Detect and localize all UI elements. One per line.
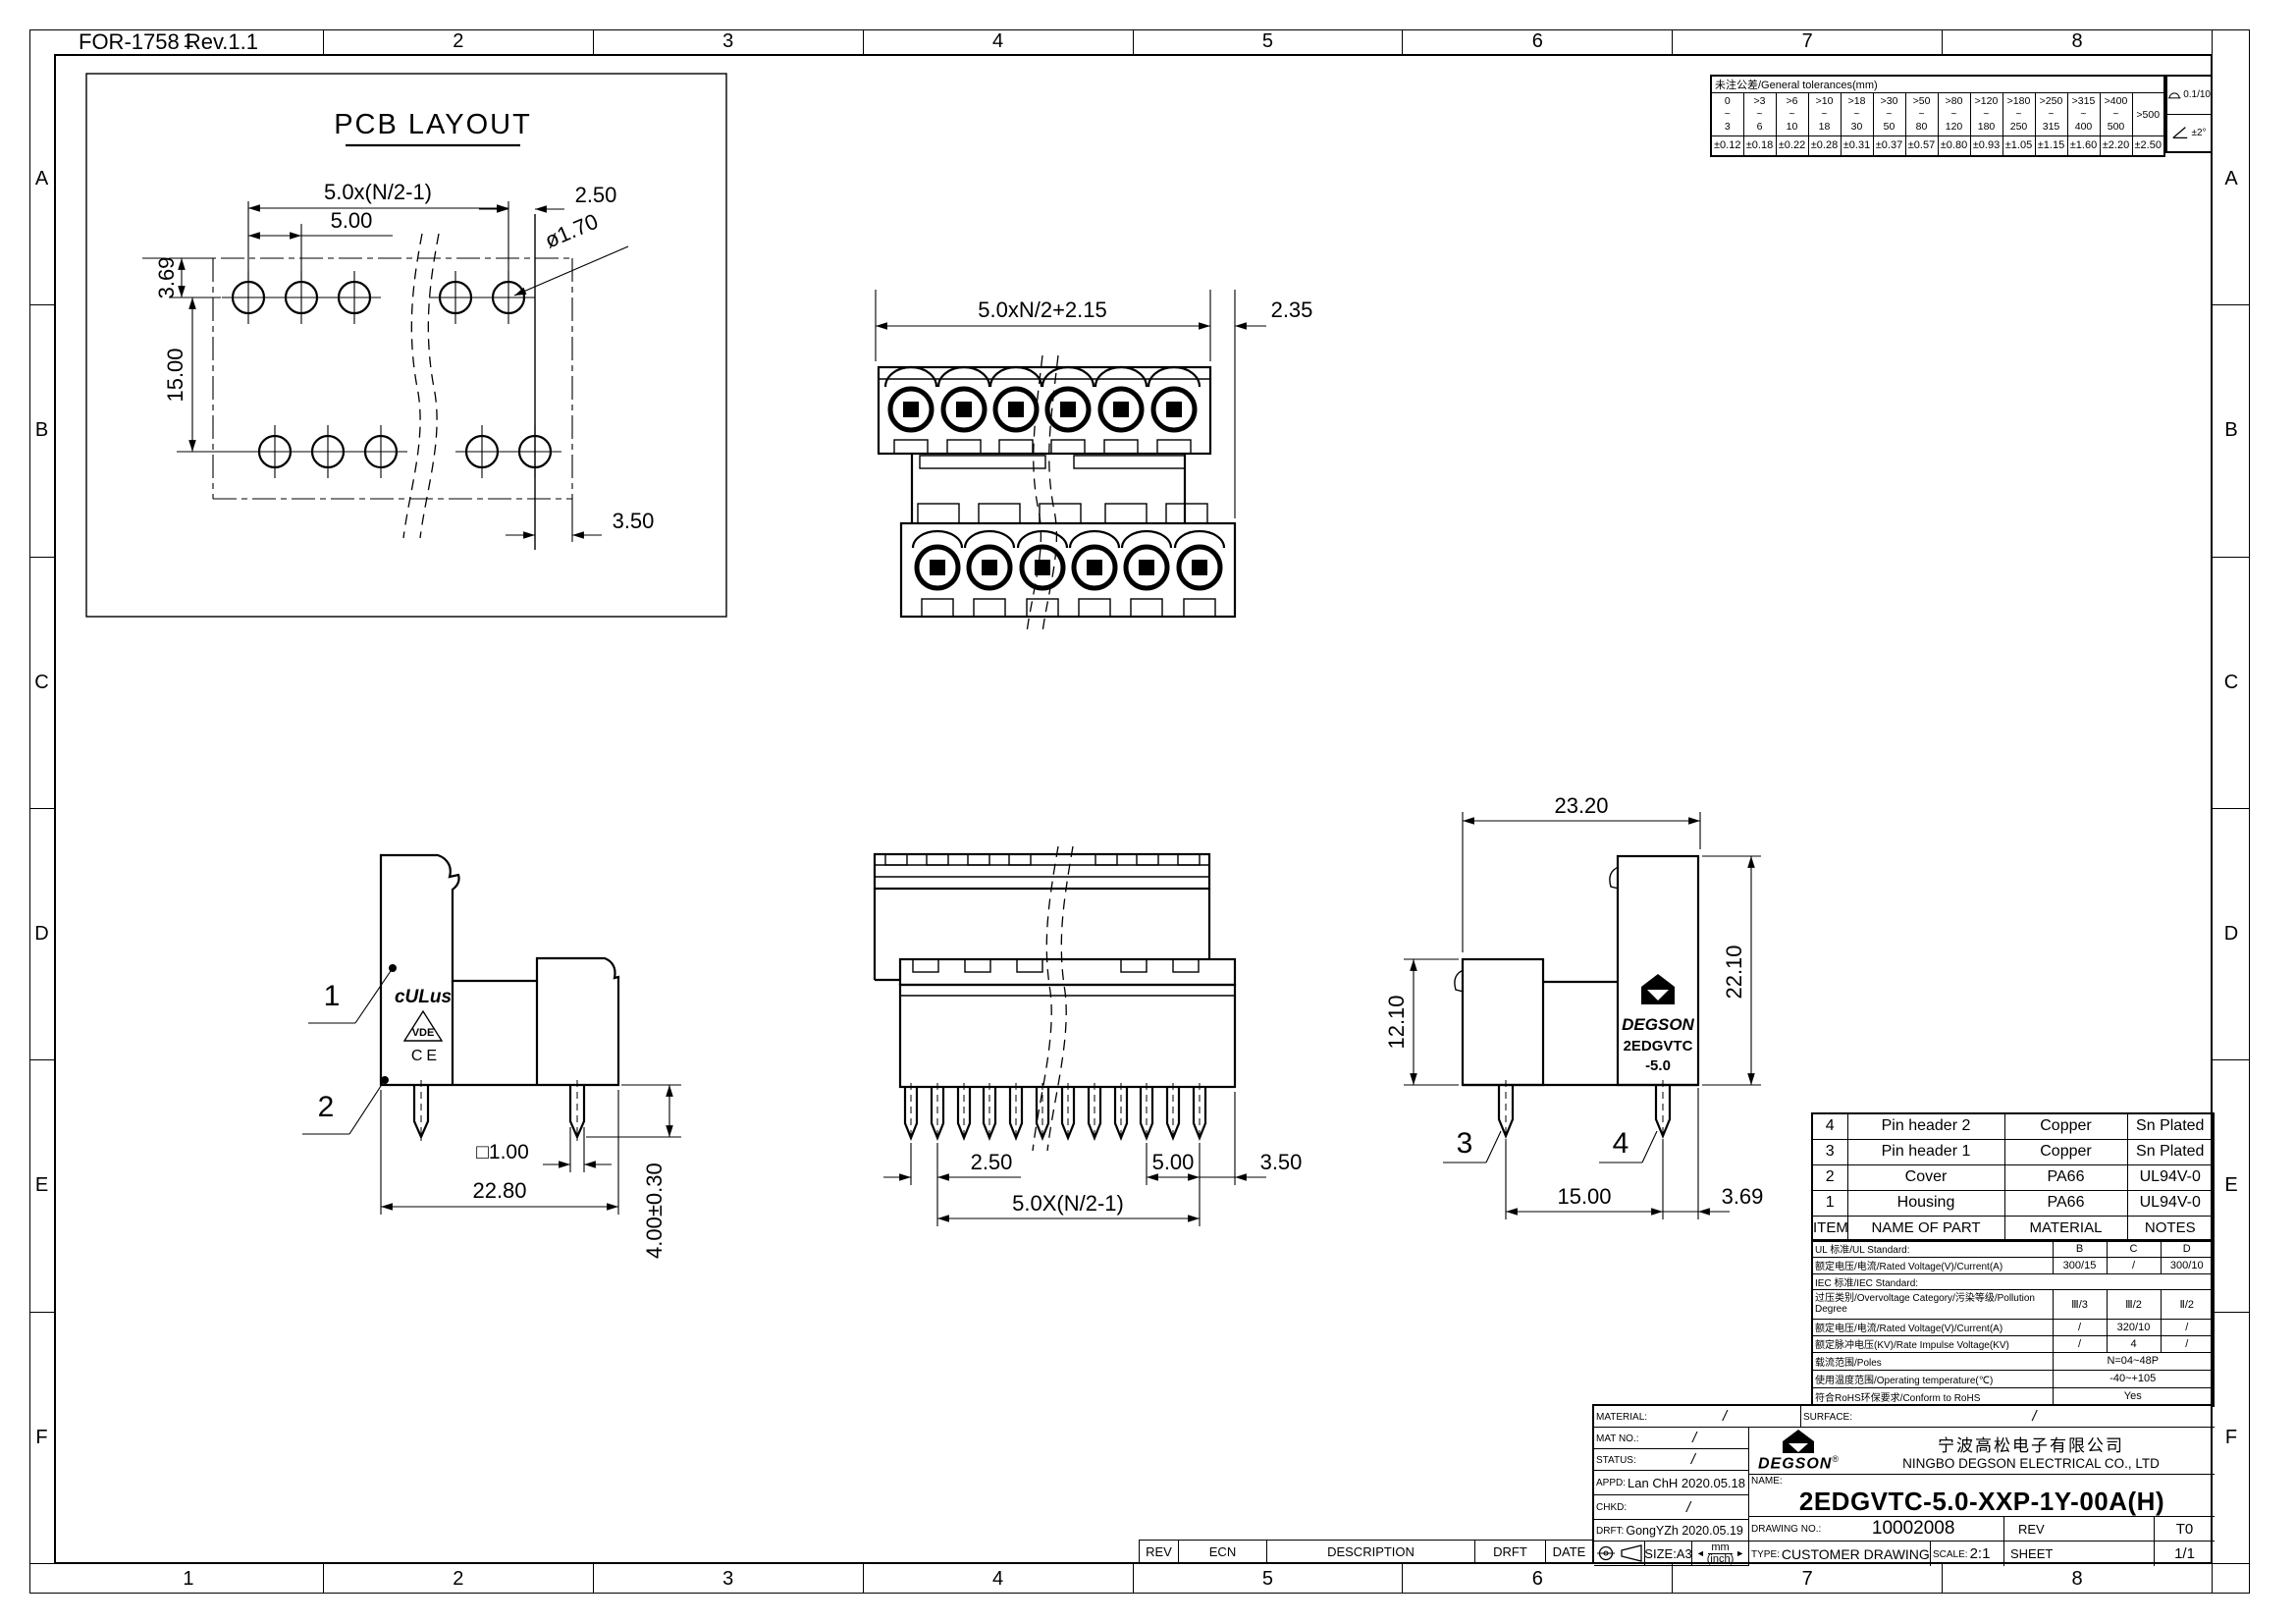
tolerance-value-cell: ±0.12 (1711, 136, 1743, 156)
part-item: 4 (1812, 1113, 1847, 1139)
parts-table-header-cell: NAME OF PART (1847, 1216, 2004, 1241)
company-logo-cell: DEGSON® (1749, 1428, 1847, 1475)
parts-table-row: 1 Housing PA66 UL94V-0 (1812, 1190, 2214, 1216)
size-cell: SIZE:A3 (1645, 1542, 1692, 1566)
part-notes: Sn Plated (2127, 1139, 2214, 1164)
border-row-label: A (29, 54, 54, 305)
revision-strip: REV ECN DESCRIPTION DRFT DATE (1139, 1540, 1593, 1564)
rev-value-cell: T0 (2155, 1517, 2215, 1542)
flatness-icon (2167, 86, 2181, 104)
tolerance-value-cell: ±0.31 (1841, 136, 1873, 156)
spec-table: UL 标准/UL Standard:BCD 额定电压/电流/Rated Volt… (1811, 1239, 2215, 1407)
spec-label: UL 标准/UL Standard: (1812, 1240, 2053, 1257)
drawing-no-cell: DRAWING NO.: 10002008 (1749, 1517, 2004, 1542)
tolerance-range-cell: >80~120 (1938, 93, 1970, 136)
scale-cell: SCALE: 2:1 (1931, 1542, 2004, 1566)
revision-header-cell: DATE (1546, 1541, 1593, 1564)
parts-table-row: 3 Pin header 1 Copper Sn Plated (1812, 1139, 2214, 1164)
border-row-label: F (2213, 1313, 2250, 1564)
part-name: Housing (1847, 1190, 2004, 1216)
tolerance-range-cell: >180~250 (2002, 93, 2035, 136)
tolerance-value-cell: ±0.37 (1873, 136, 1905, 156)
part-material: PA66 (2004, 1190, 2127, 1216)
tolerance-range-cell: >6~10 (1776, 93, 1808, 136)
part-material: Copper (2004, 1113, 2127, 1139)
border-rows-left: ABCDEF (29, 54, 54, 1564)
general-tolerance-table: 未注公差/General tolerances(mm) 0~3 >3~6 >6~… (1710, 75, 2165, 157)
tolerance-range-cell: >18~30 (1841, 93, 1873, 136)
border-row-label: E (29, 1060, 54, 1312)
tolerance-range-cell: >120~180 (1970, 93, 2002, 136)
spec-label: 额定电压/电流/Rated Voltage(V)/Current(A) (1812, 1257, 2053, 1273)
parts-table-header-row: ITEM NAME OF PART MATERIAL NOTES (1812, 1216, 2214, 1241)
arrow-left-icon: ◄ (1696, 1548, 1705, 1558)
tolerance-range-cell: >10~18 (1808, 93, 1841, 136)
tolerance-table-title: 未注公差/General tolerances(mm) (1711, 76, 2164, 93)
chkd-cell: CHKD:/ (1594, 1495, 1749, 1520)
border-row-label: D (2213, 809, 2250, 1060)
revision-header-cell: REV (1140, 1541, 1179, 1564)
surface-cell: SURFACE:/ (1801, 1406, 2215, 1428)
border-row-label: B (2213, 305, 2250, 557)
border-row-label: C (2213, 558, 2250, 809)
mat-no-cell: MAT NO.:/ (1594, 1428, 1749, 1449)
part-name: Pin header 2 (1847, 1113, 2004, 1139)
border-column-label: 2 (324, 29, 594, 54)
part-notes: UL94V-0 (2127, 1190, 2214, 1216)
border-column-label: 8 (1943, 1564, 2213, 1594)
tolerance-range-cell: >500 (2132, 93, 2164, 136)
border-row-label: C (29, 558, 54, 809)
flatness-value: 0.1/10 (2183, 89, 2211, 100)
border-row-label: A (2213, 54, 2250, 305)
border-columns-top: 12345678 (54, 29, 2213, 54)
sheet-label-cell: SHEET (2004, 1542, 2155, 1566)
revision-header-row: REV ECN DESCRIPTION DRFT DATE (1140, 1541, 1593, 1564)
type-cell: TYPE: CUSTOMER DRAWING (1749, 1542, 1931, 1566)
parts-table-row: 4 Pin header 2 Copper Sn Plated (1812, 1113, 2214, 1139)
tolerance-range-cell: >250~315 (2035, 93, 2067, 136)
border-column-label: 4 (864, 1564, 1134, 1594)
parts-table-row: 2 Cover PA66 UL94V-0 (1812, 1164, 2214, 1190)
drawing-number: 10002008 (1823, 1518, 2003, 1540)
degson-logo-icon (1779, 1429, 1818, 1454)
border-rows-right: ABCDEF (2213, 54, 2250, 1564)
part-item: 1 (1812, 1190, 1847, 1216)
status-cell: STATUS:/ (1594, 1449, 1749, 1471)
border-row-label: E (2213, 1060, 2250, 1312)
border-column-label: 3 (594, 1564, 864, 1594)
angle-icon (2171, 124, 2189, 141)
tolerance-value-cell: ±0.28 (1808, 136, 1841, 156)
arrow-right-icon: ► (1735, 1548, 1744, 1558)
rev-label-cell: REV (2004, 1517, 2155, 1542)
part-notes: Sn Plated (2127, 1113, 2214, 1139)
appd-cell: APPD:Lan ChH 2020.05.18 (1594, 1471, 1749, 1495)
spec-label: 过压类别/Overvoltage Category/污染等级/Pollution… (1812, 1289, 2053, 1319)
tolerance-range-cell: >30~50 (1873, 93, 1905, 136)
parts-table-header-cell: NOTES (2127, 1216, 2214, 1241)
parts-table-header-cell: MATERIAL (2004, 1216, 2127, 1241)
border-row-label: F (29, 1313, 54, 1564)
border-column-label: 5 (1134, 1564, 1404, 1594)
tolerance-value-cell: ±1.60 (2067, 136, 2100, 156)
part-item: 2 (1812, 1164, 1847, 1190)
tolerance-value-cell: ±1.15 (2035, 136, 2067, 156)
tolerance-value-cell: ±0.93 (1970, 136, 2002, 156)
border-row-label: B (29, 305, 54, 557)
form-number-note: FOR-1758 Rev.1.1 (79, 29, 258, 54)
border-column-label: 2 (324, 1564, 594, 1594)
spec-label: 载流范围/Poles (1812, 1352, 2053, 1370)
tolerance-range-cell: >3~6 (1743, 93, 1776, 136)
parts-table: 4 Pin header 2 Copper Sn Plated 3 Pin he… (1811, 1112, 2215, 1242)
drft-cell: DRFT:GongYZh 2020.05.19 (1594, 1520, 1749, 1542)
part-item: 3 (1812, 1139, 1847, 1164)
border-column-label: 1 (54, 1564, 324, 1594)
material-cell: MATERIAL:/ (1594, 1406, 1801, 1428)
tolerance-value-cell: ±0.18 (1743, 136, 1776, 156)
tolerance-range-cell: >315~400 (2067, 93, 2100, 136)
drawing-sheet: PCB LAYOUT (0, 0, 2296, 1623)
border-row-label: D (29, 809, 54, 1060)
border-column-label: 7 (1673, 29, 1943, 54)
tolerance-value-cell: ±0.22 (1776, 136, 1808, 156)
border-column-label: 6 (1403, 1564, 1673, 1594)
part-name: Cover (1847, 1164, 2004, 1190)
border-column-label: 4 (864, 29, 1134, 54)
sheet-value-cell: 1/1 (2155, 1542, 2215, 1566)
part-name-cell: NAME: 2EDGVTC-5.0-XXP-1Y-00A(H) (1749, 1475, 2215, 1517)
part-material: Copper (2004, 1139, 2127, 1164)
spec-label: 额定脉冲电压(KV)/Rate Impulse Voltage(KV) (1812, 1335, 2053, 1352)
part-material: PA66 (2004, 1164, 2127, 1190)
tolerance-value-cell: ±0.80 (1938, 136, 1970, 156)
border-columns-bottom: 12345678 (54, 1564, 2213, 1594)
tolerance-range-cell: >50~80 (1905, 93, 1938, 136)
angle-tolerance-value: ±2° (2191, 128, 2206, 138)
tolerance-symbols-box: 0.1/10 ±2° (2165, 75, 2213, 153)
tolerance-value-cell: ±2.20 (2100, 136, 2132, 156)
revision-header-cell: ECN (1179, 1541, 1267, 1564)
spec-label: 使用温度范围/Operating temperature(℃) (1812, 1370, 2053, 1387)
part-number: 2EDGVTC-5.0-XXP-1Y-00A(H) (1749, 1487, 2215, 1517)
company-name-cell: 宁波高松电子有限公司 NINGBO DEGSON ELECTRICAL CO.,… (1847, 1428, 2215, 1475)
tolerance-value-cell: ±1.05 (2002, 136, 2035, 156)
part-name: Pin header 1 (1847, 1139, 2004, 1164)
revision-header-cell: DRFT (1475, 1541, 1546, 1564)
spec-label: IEC 标准/IEC Standard: (1812, 1273, 2214, 1289)
spec-label: 额定电压/电流/Rated Voltage(V)/Current(A) (1812, 1319, 2053, 1335)
units-cell: ◄ mm(inch) ► (1692, 1542, 1749, 1566)
part-notes: UL94V-0 (2127, 1164, 2214, 1190)
tolerance-range-cell: 0~3 (1711, 93, 1743, 136)
parts-table-header-cell: ITEM (1812, 1216, 1847, 1241)
border-column-label: 5 (1134, 29, 1404, 54)
border-column-label: 3 (594, 29, 864, 54)
border-column-label: 6 (1403, 29, 1673, 54)
border-column-label: 8 (1943, 29, 2213, 54)
projection-symbol-cell (1594, 1542, 1645, 1566)
border-column-label: 7 (1673, 1564, 1943, 1594)
tolerance-value-cell: ±2.50 (2132, 136, 2164, 156)
title-block: MATERIAL:/ SURFACE:/ MAT NO.:/ STATUS:/ … (1592, 1404, 2213, 1564)
revision-header-cell: DESCRIPTION (1267, 1541, 1475, 1564)
registered-icon: ® (1832, 1454, 1839, 1464)
tolerance-value-cell: ±0.57 (1905, 136, 1938, 156)
tolerance-range-cell: >400~500 (2100, 93, 2132, 136)
first-angle-projection-icon (1596, 1543, 1643, 1563)
